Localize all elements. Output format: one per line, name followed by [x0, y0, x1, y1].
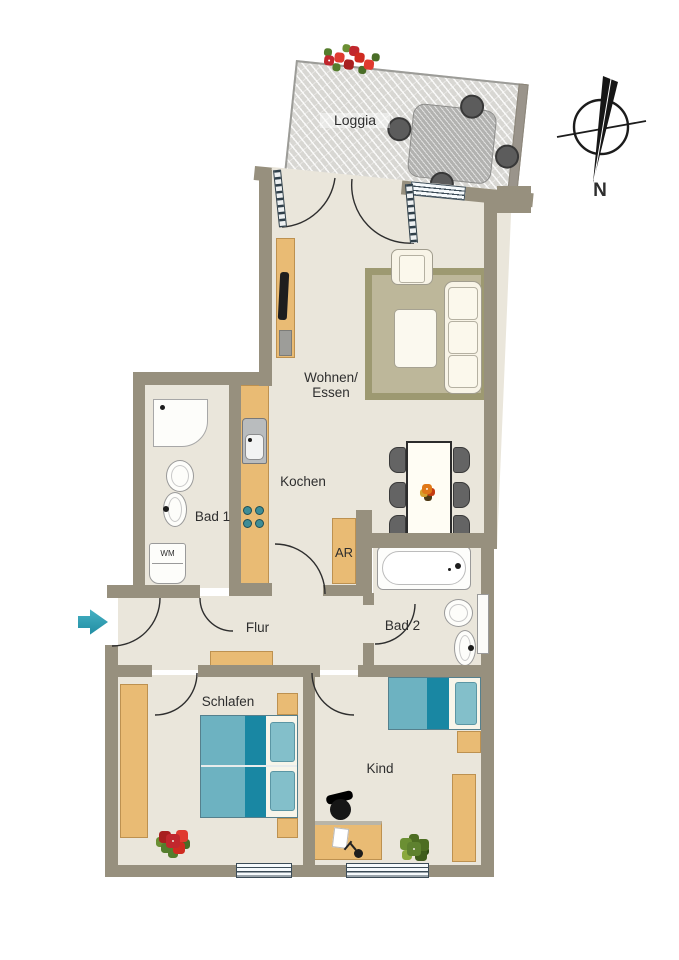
compass-north-label: N: [588, 183, 612, 198]
wall: [372, 533, 497, 548]
room-label-ar: AR: [329, 545, 359, 560]
wall: [107, 585, 200, 598]
bathtub-faucet: [455, 563, 461, 569]
bathtub-handle: [448, 568, 451, 571]
wall: [133, 385, 145, 595]
kids-bed-pillow: [455, 682, 477, 725]
washing-machine-line: [152, 563, 183, 564]
entry-arrow-icon: [78, 607, 108, 637]
floor-plan: Loggia WM: [0, 0, 679, 960]
wall: [241, 583, 272, 596]
desk-chair: [330, 799, 351, 820]
wall: [290, 865, 348, 877]
bed-pillow: [270, 722, 295, 762]
bed-divider: [201, 765, 297, 767]
compass-icon: [557, 76, 646, 183]
flower-box: [328, 59, 330, 61]
room-label-wohnen-essen: Wohnen/ Essen: [290, 370, 372, 400]
red-plant: [172, 840, 174, 842]
nightstand: [277, 693, 298, 715]
dining-chair: [389, 482, 406, 508]
room-label-flur: Flur: [230, 620, 285, 635]
toilet: [444, 599, 473, 627]
stove-burner: [243, 506, 252, 515]
kids-wardrobe: [452, 774, 476, 862]
stove-burner: [255, 519, 264, 528]
kitchen-faucet: [248, 438, 252, 442]
nightstand: [277, 818, 298, 838]
wall: [105, 645, 118, 877]
loggia-chair: [386, 116, 412, 142]
washing-machine-label: WM: [149, 549, 186, 558]
wall: [259, 170, 272, 386]
dining-chair: [453, 482, 470, 508]
sideboard-cabinet: [279, 330, 292, 356]
bed-pillow: [270, 771, 295, 811]
sofa-cushion: [448, 355, 478, 388]
room-label-kochen: Kochen: [263, 474, 343, 489]
table-decoration: [426, 488, 428, 490]
sink-faucet: [163, 506, 169, 512]
sink-faucet: [468, 645, 474, 651]
bath2-window: [477, 594, 489, 654]
dining-table: [406, 441, 452, 541]
kidsroom-window: [346, 863, 429, 878]
wall: [105, 665, 152, 677]
coffee-table: [394, 309, 437, 368]
wall: [198, 665, 320, 677]
toilet: [166, 460, 194, 492]
kids-bed-stripe: [427, 678, 449, 729]
armchair-seat: [399, 255, 425, 283]
wall: [229, 385, 241, 596]
room-label-schlafen: Schlafen: [195, 694, 261, 709]
wall: [303, 677, 315, 867]
room-label-kind: Kind: [355, 761, 405, 776]
green-plant: [413, 848, 415, 850]
bathtub-basin: [382, 551, 466, 585]
room-label-bad1: Bad 1: [185, 509, 240, 524]
wall: [254, 166, 272, 182]
dining-chair: [453, 447, 470, 473]
dining-chair: [389, 447, 406, 473]
wall: [363, 593, 374, 605]
wall: [133, 372, 272, 385]
nightstand: [457, 731, 481, 753]
wall: [105, 865, 238, 877]
wardrobe: [120, 684, 148, 838]
wall: [427, 865, 494, 877]
bedroom-window: [236, 863, 292, 878]
sofa-cushion: [448, 287, 478, 320]
wall: [484, 193, 497, 549]
sofa-cushion: [448, 321, 478, 354]
room-label-bad2: Bad 2: [375, 618, 430, 633]
wall: [358, 665, 494, 677]
loggia-table: [406, 103, 497, 185]
stove-burner: [243, 519, 252, 528]
stove-burner: [255, 506, 264, 515]
room-label-loggia: Loggia: [320, 113, 390, 128]
shower-drain: [160, 405, 165, 410]
